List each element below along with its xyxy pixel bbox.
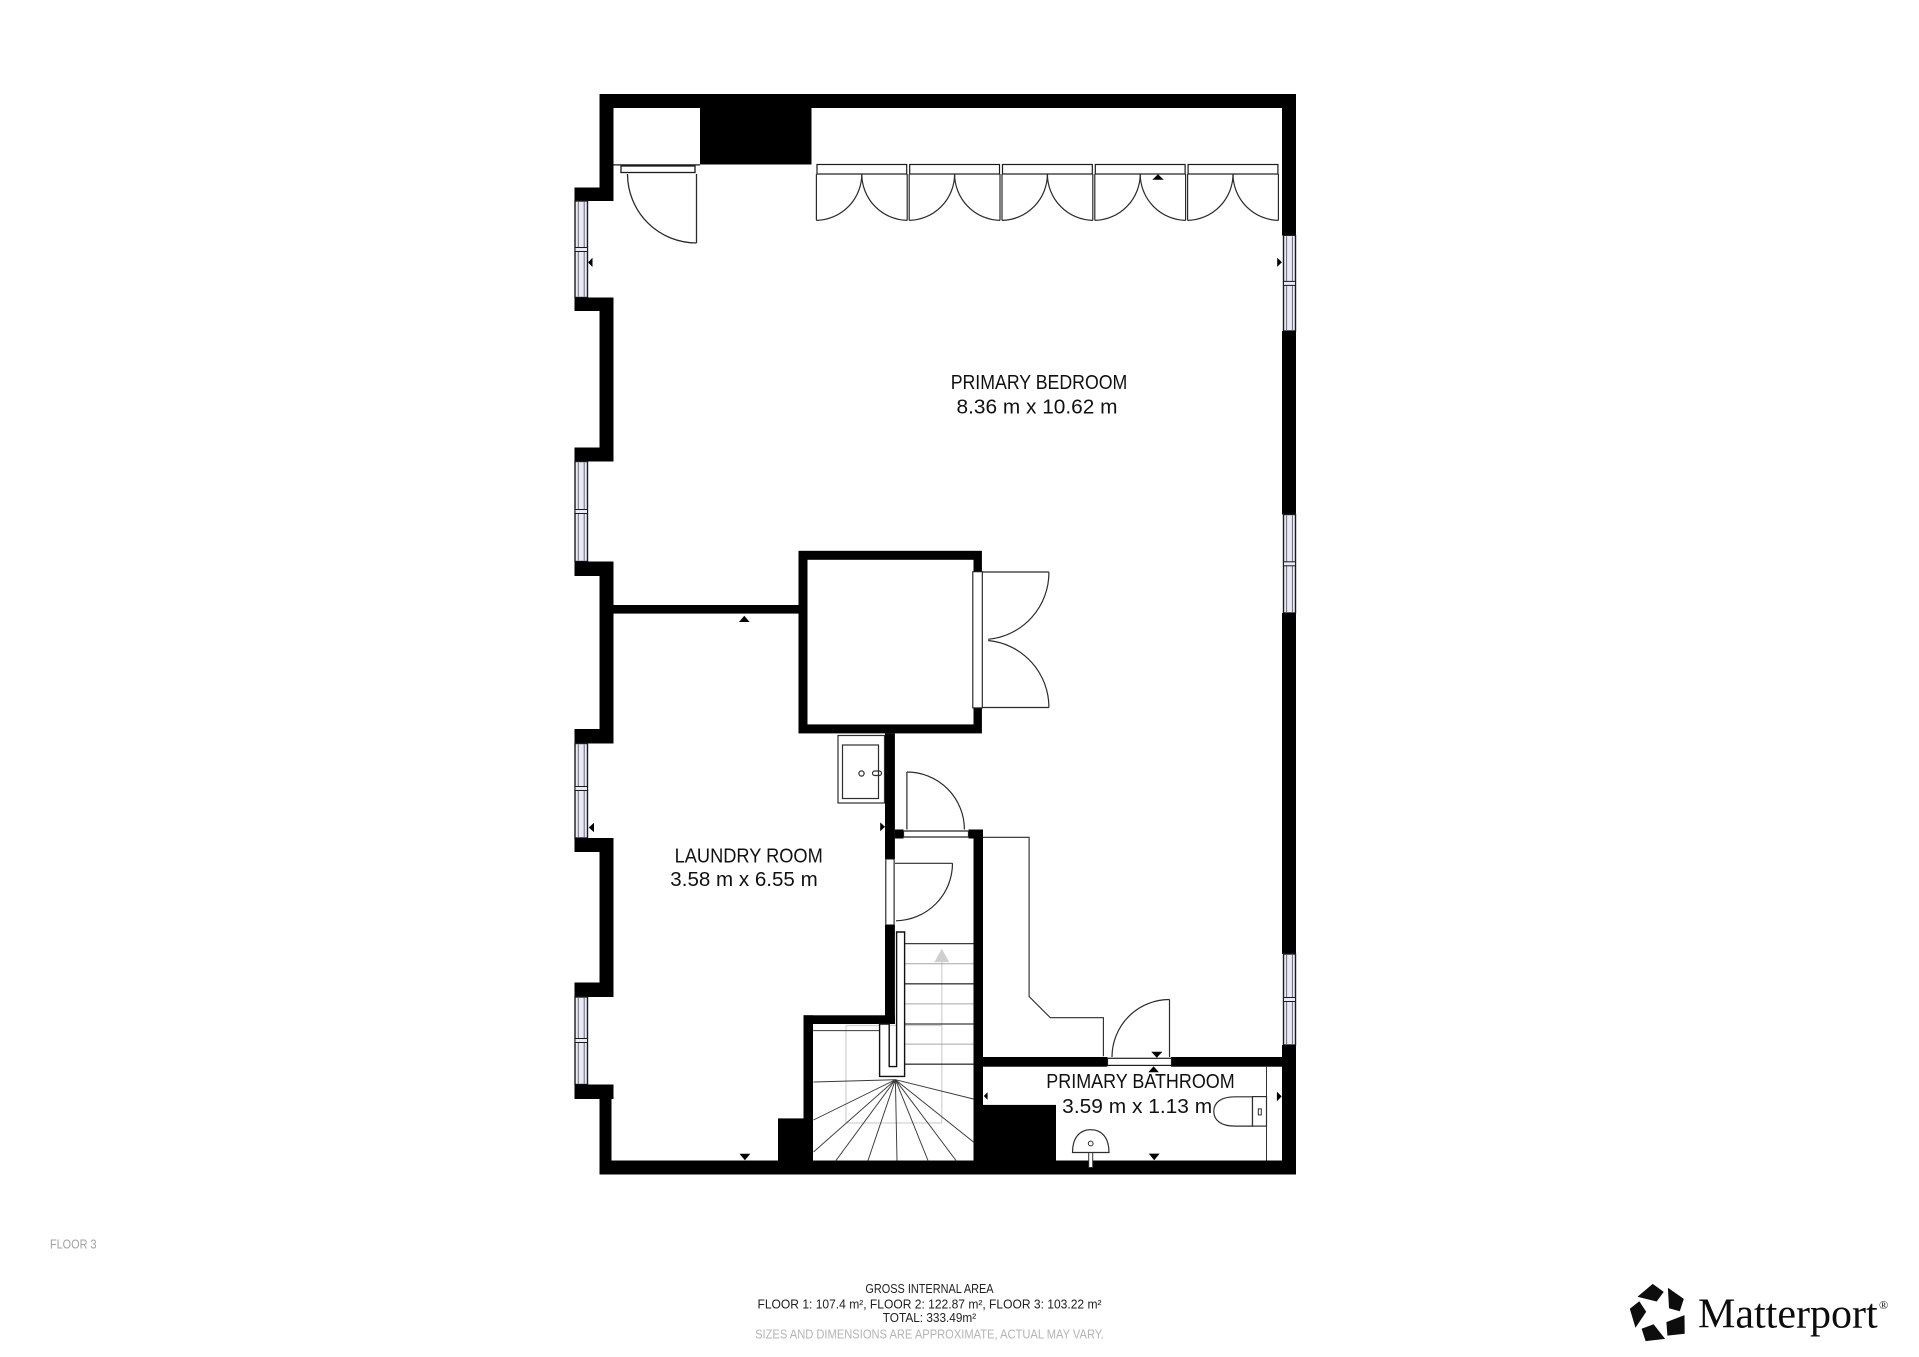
svg-text:SIZES AND DIMENSIONS ARE APPRO: SIZES AND DIMENSIONS ARE APPROXIMATE, AC… bbox=[755, 1326, 1104, 1341]
svg-text:®: ® bbox=[1879, 1298, 1888, 1312]
svg-text:TOTAL: 333.49m²: TOTAL: 333.49m² bbox=[883, 1310, 977, 1325]
svg-text:GROSS INTERNAL AREA: GROSS INTERNAL AREA bbox=[865, 1281, 993, 1296]
svg-text:3.59 m x 1.13 m: 3.59 m x 1.13 m bbox=[1062, 1096, 1212, 1118]
svg-text:PRIMARY BATHROOM: PRIMARY BATHROOM bbox=[1046, 1071, 1234, 1093]
svg-text:FLOOR 3: FLOOR 3 bbox=[50, 1237, 97, 1252]
svg-text:3.58 m x 6.55 m: 3.58 m x 6.55 m bbox=[670, 869, 817, 891]
svg-text:Matterport: Matterport bbox=[1698, 1291, 1878, 1337]
svg-text:LAUNDRY ROOM: LAUNDRY ROOM bbox=[675, 846, 823, 868]
svg-text:8.36 m x 10.62 m: 8.36 m x 10.62 m bbox=[957, 397, 1118, 419]
svg-text:PRIMARY BEDROOM: PRIMARY BEDROOM bbox=[951, 372, 1128, 394]
